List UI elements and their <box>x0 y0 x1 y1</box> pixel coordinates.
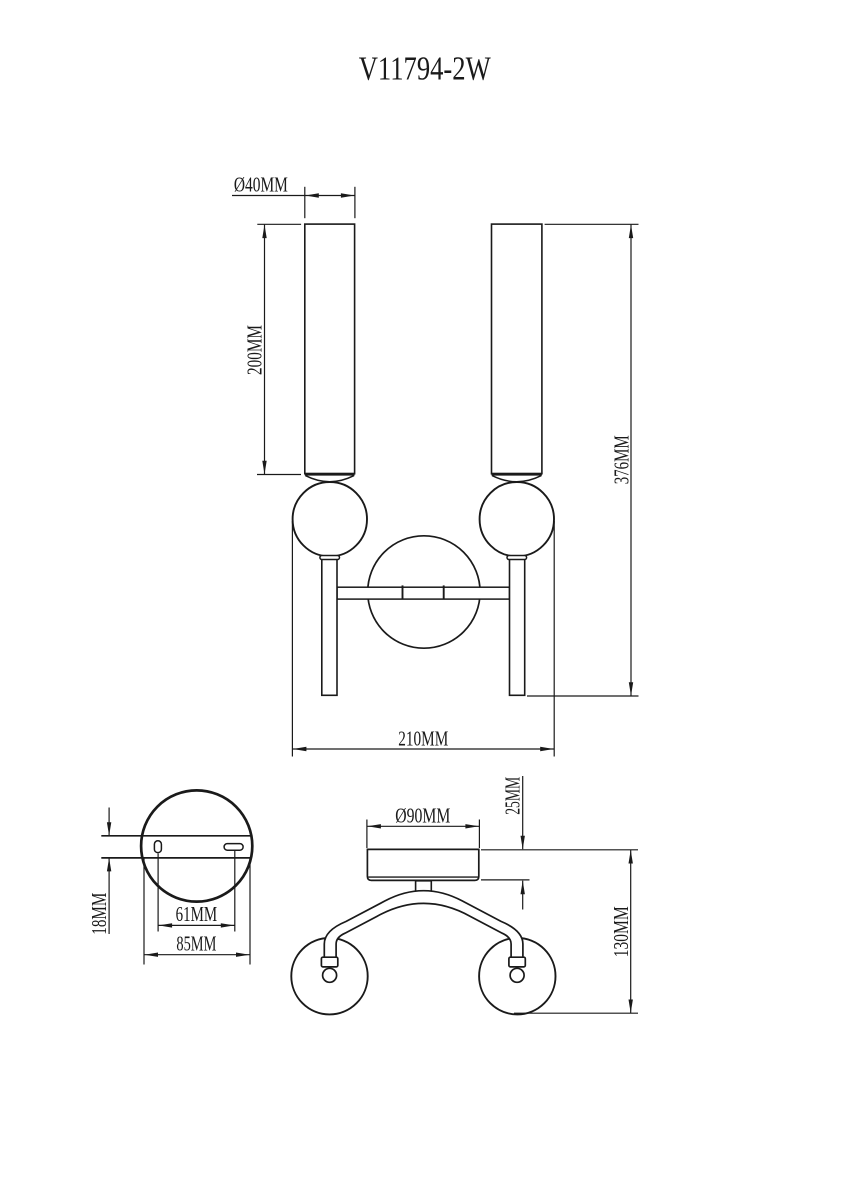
svg-text:Ø90MM: Ø90MM <box>395 803 450 827</box>
svg-text:130MM: 130MM <box>609 906 633 957</box>
svg-text:61MM: 61MM <box>176 902 218 926</box>
svg-text:200MM: 200MM <box>243 325 267 375</box>
svg-text:18MM: 18MM <box>87 892 111 934</box>
svg-text:Ø40MM: Ø40MM <box>234 173 288 197</box>
svg-text:25MM: 25MM <box>500 777 524 815</box>
svg-text:V11794-2W: V11794-2W <box>359 50 492 87</box>
svg-text:85MM: 85MM <box>176 931 216 955</box>
svg-text:376MM: 376MM <box>609 435 633 484</box>
svg-text:210MM: 210MM <box>398 727 448 751</box>
